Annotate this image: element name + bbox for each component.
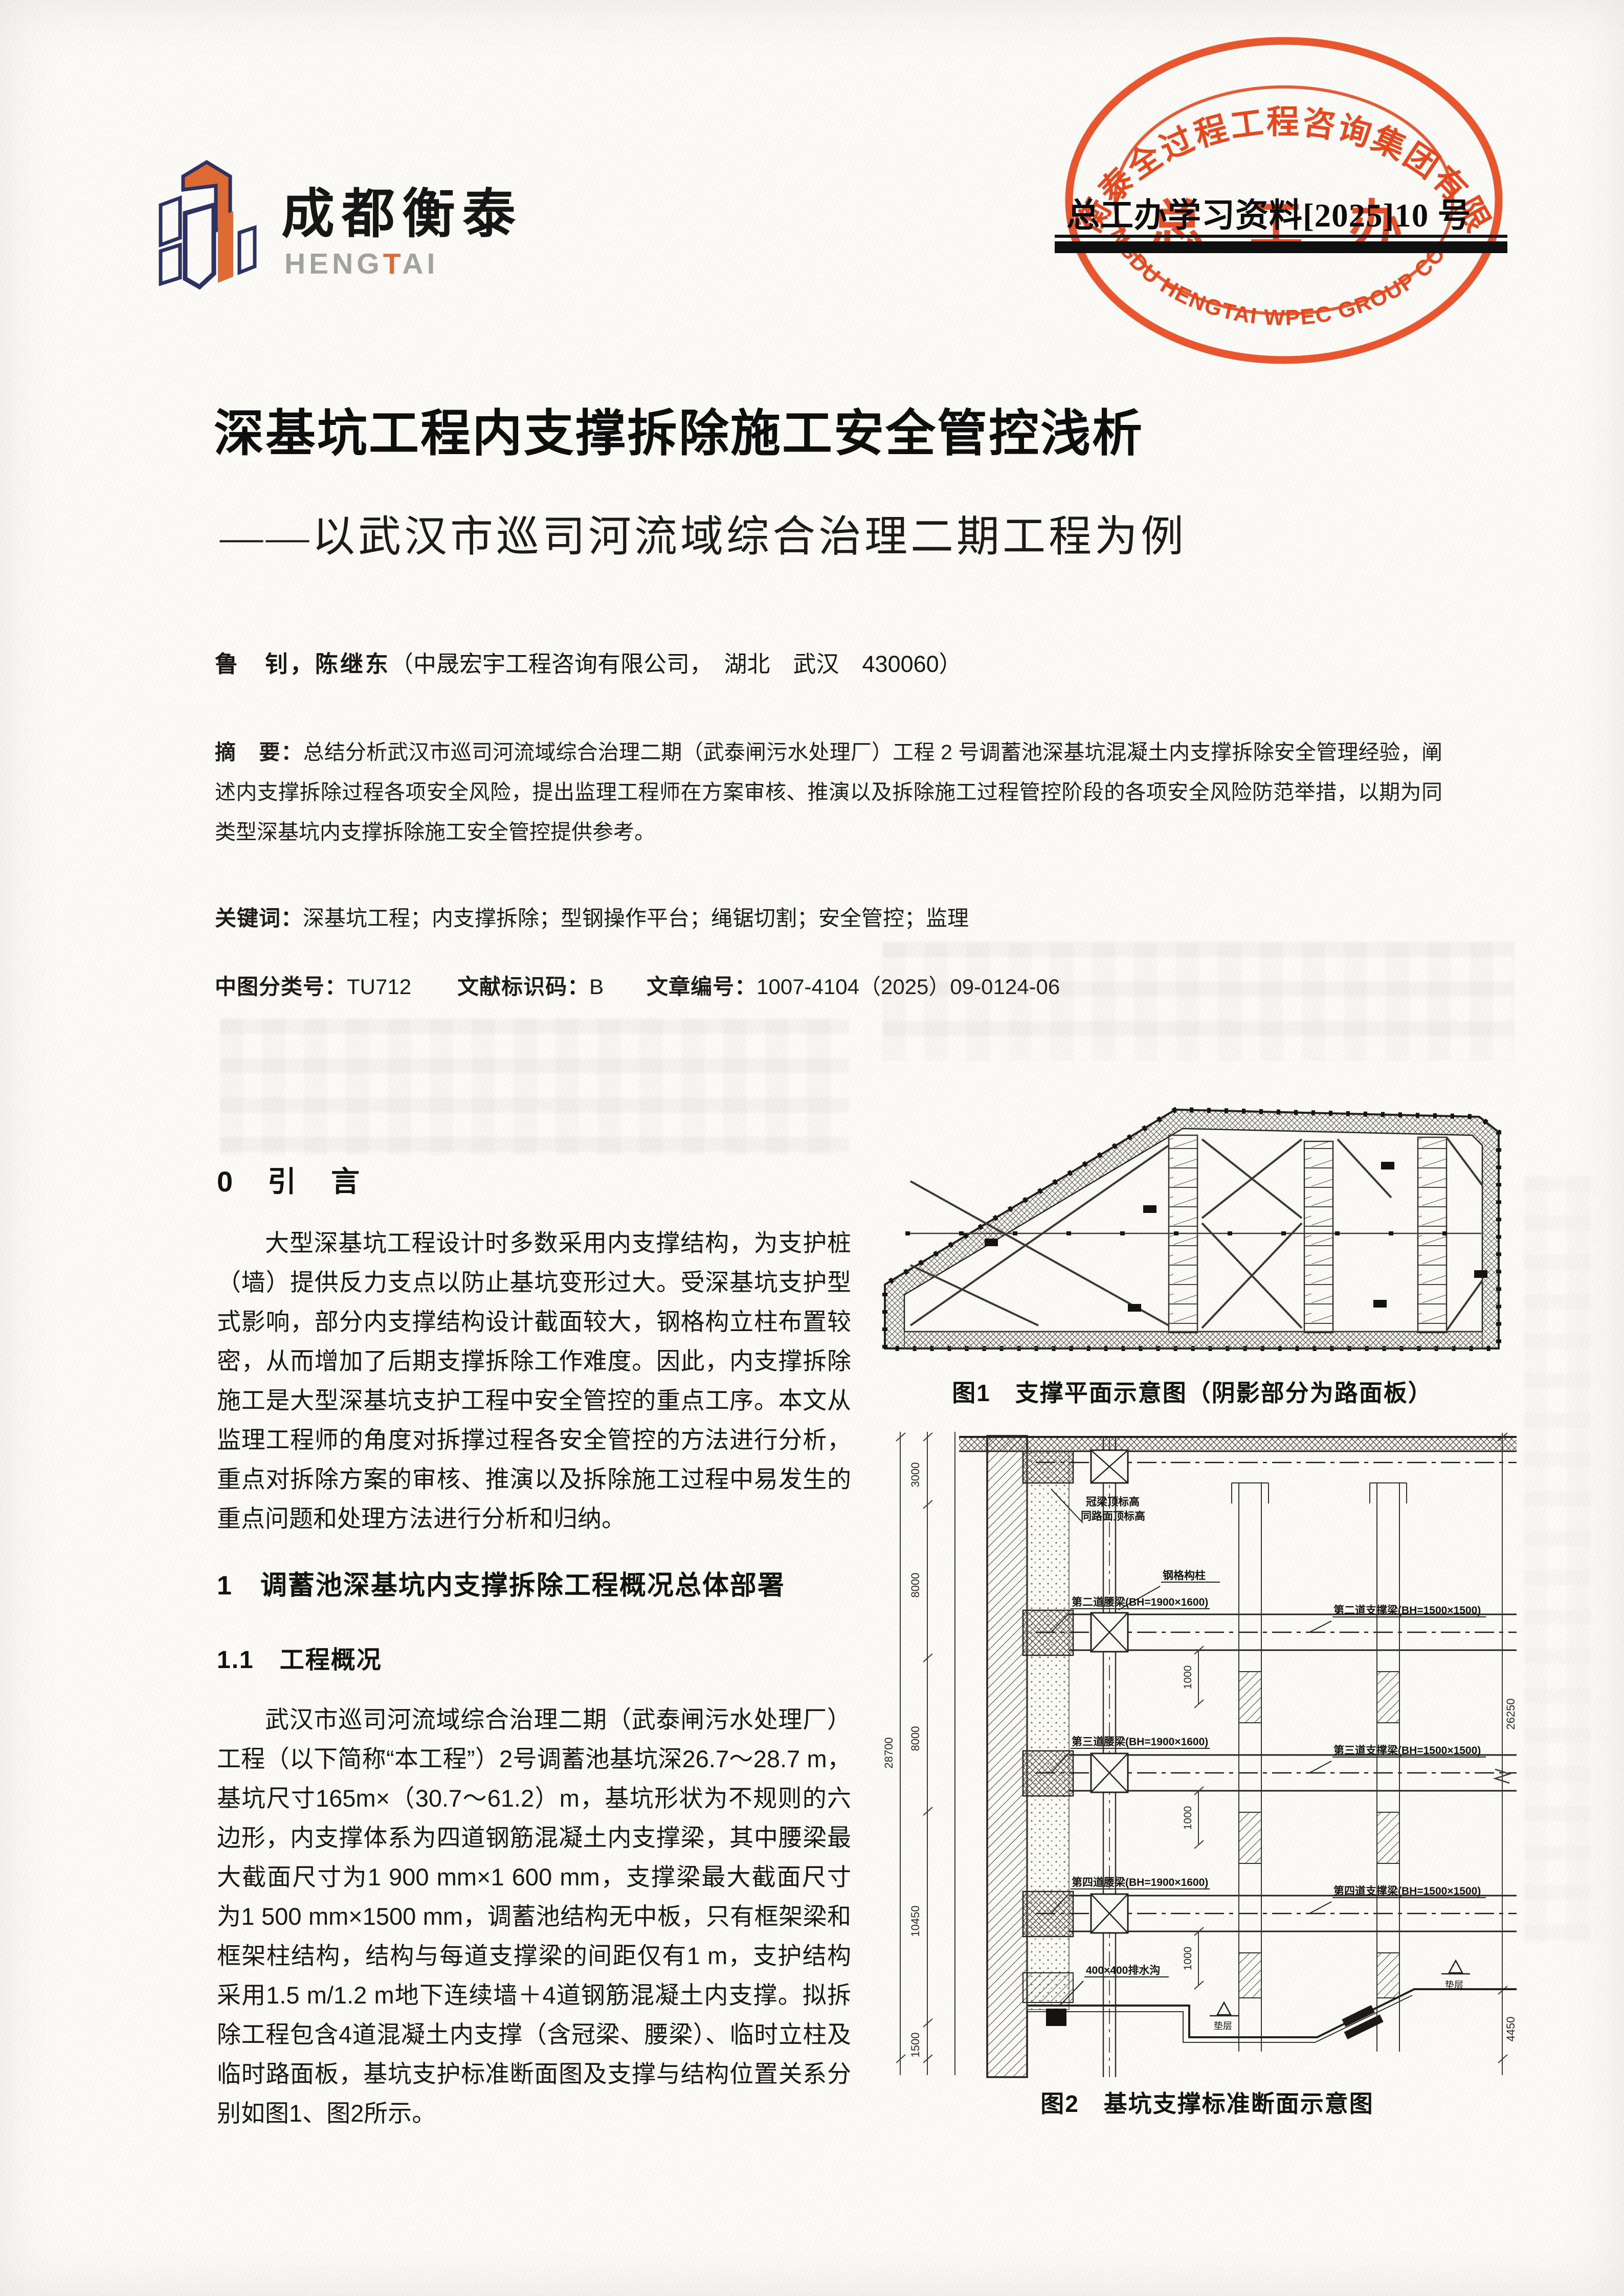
paper-title: 深基坑工程内支撑拆除施工安全管控浅析	[214, 393, 1144, 465]
svg-text:同路面顶标高: 同路面顶标高	[1081, 1510, 1145, 1522]
svg-text:26250: 26250	[1504, 1698, 1517, 1729]
fig2-left-dimension-numbers: 3000 8000 8000 10450 1500 28700	[882, 1462, 922, 2058]
svg-text:1500: 1500	[909, 2033, 922, 2058]
svg-text:第四道腰梁(BH=1900×1600): 第四道腰梁(BH=1900×1600)	[1072, 1876, 1208, 1888]
bleed-through-margin	[1524, 1176, 1591, 1943]
logo-en-part: HENG	[284, 247, 383, 280]
keywords-text: 深基坑工程；内支撑拆除；型钢操作平台；绳锯切割；安全管控；监理	[303, 906, 969, 930]
svg-text:3000: 3000	[909, 1462, 922, 1488]
section-1-1-heading: 1.1 工程概况	[217, 1639, 382, 1675]
figure-1-support-plan-drawing	[870, 1070, 1515, 1365]
svg-text:第三道腰梁(BH=1900×1600): 第三道腰梁(BH=1900×1600)	[1072, 1736, 1208, 1748]
section-1-1-paragraph: 武汉市巡司河流域综合治理二期（武泰闸污水处理厂）工程（以下简称“本工程”）2号调…	[217, 1700, 851, 2133]
figure-2-cross-section-drawing: 3000 8000 8000 10450 1500 28700	[882, 1417, 1532, 2078]
abstract-label: 摘 要：	[215, 740, 303, 764]
svg-text:垫层: 垫层	[1214, 2021, 1232, 2031]
svg-text:8000: 8000	[909, 1573, 922, 1598]
doc-code-label: 文献标识码：	[457, 975, 589, 999]
hengtai-logo-icon	[153, 156, 261, 291]
logo-company-name-cn: 成都衡泰	[281, 170, 523, 247]
svg-text:冠梁顶标高: 冠梁顶标高	[1086, 1496, 1140, 1508]
fig2-spacing-dims: 1000 1000 1000	[1182, 1646, 1204, 1989]
svg-text:1000: 1000	[1182, 1665, 1194, 1690]
author-names: 鲁 钊，陈继东	[215, 651, 390, 677]
svg-text:第二道支撑梁(BH=1500×1500): 第二道支撑梁(BH=1500×1500)	[1333, 1604, 1481, 1616]
svg-text:第三道支撑梁(BH=1500×1500): 第三道支撑梁(BH=1500×1500)	[1333, 1744, 1481, 1757]
bleed-through-left	[220, 1019, 849, 1156]
abstract-text: 总结分析武汉市巡司河流域综合治理二期（武泰闸污水处理厂）工程 2 号调蓄池深基坑…	[215, 740, 1442, 844]
svg-text:1000: 1000	[1182, 1947, 1194, 1971]
svg-text:垫层: 垫层	[1445, 1980, 1463, 1990]
svg-text:第二道腰梁(BH=1900×1600): 第二道腰梁(BH=1900×1600)	[1072, 1596, 1208, 1608]
figure-2-caption: 图2 基坑支撑标准断面示意图	[882, 2085, 1532, 2119]
scanned-paper-page: 成都衡泰 HENGTAI 成都衡泰全过程工程咨询集团有限公司 CHENGDU H…	[0, 0, 1624, 2296]
fig2-drain-block	[1046, 2009, 1066, 2026]
company-logo: 成都衡泰 HENGTAI	[153, 151, 542, 299]
svg-text:8000: 8000	[909, 1726, 922, 1751]
clc-value: TU712	[347, 975, 411, 999]
section-0-heading: 0 引 言	[217, 1159, 363, 1200]
svg-text:4450: 4450	[1504, 2017, 1517, 2042]
svg-text:10450: 10450	[909, 1905, 922, 1937]
fig1-bottom-truss-band	[904, 1332, 1482, 1348]
section-1-heading: 1 调蓄池深基坑内支撑拆除工程概况总体部署	[217, 1564, 785, 1602]
keywords-line: 关键词：深基坑工程；内支撑拆除；型钢操作平台；绳锯切割；安全管控；监理	[215, 901, 969, 932]
bleed-through-right	[882, 942, 1514, 1061]
fig2-right-dimension-line: 26250 4450	[1495, 1433, 1517, 2075]
logo-en-orange-t: T	[383, 247, 403, 280]
svg-text:钢格构柱: 钢格构柱	[1163, 1569, 1206, 1582]
logo-en-part2: AI	[402, 247, 438, 280]
fig2-road-surface	[959, 1437, 1517, 1451]
clc-label: 中图分类号：	[215, 975, 347, 999]
abstract-block: 摘 要：总结分析武汉市巡司河流域综合治理二期（武泰闸污水处理厂）工程 2 号调蓄…	[215, 732, 1442, 852]
fig2-left-dimension-lines	[896, 1432, 955, 2075]
paper-subtitle: ——以武汉市巡司河流域综合治理二期工程为例	[220, 502, 1187, 564]
doc-code-value: B	[589, 975, 604, 999]
svg-text:400×400排水沟: 400×400排水沟	[1086, 1964, 1160, 1976]
header-rule-thin	[1055, 235, 1507, 238]
fig2-support-beams	[1036, 1462, 1517, 1931]
article-id-label: 文章编号：	[647, 975, 757, 999]
authors-line: 鲁 钊，陈继东（中晟宏宇工程咨询有限公司， 湖北 武汉 430060）	[215, 645, 962, 679]
fig2-diaphragm-wall	[987, 1436, 1027, 2077]
svg-text:28700: 28700	[882, 1737, 895, 1768]
svg-text:第四道支撑梁(BH=1500×1500): 第四道支撑梁(BH=1500×1500)	[1333, 1885, 1481, 1897]
doc-number-overlay: 总工办学习资料[2025]10 号	[1066, 188, 1472, 236]
keywords-label: 关键词：	[215, 906, 303, 930]
author-affiliation: （中晟宏宇工程咨询有限公司， 湖北 武汉 430060）	[390, 651, 962, 677]
figure-1-caption: 图1 支撑平面示意图（阴影部分为路面板）	[870, 1375, 1515, 1408]
logo-company-name-en: HENGTAI	[284, 247, 438, 281]
section-0-paragraph: 大型深基坑工程设计时多数采用内支撑结构，为支护桩（墙）提供反力支点以防止基坑变形…	[217, 1223, 851, 1538]
header-rule-thick	[1055, 241, 1507, 253]
svg-text:1000: 1000	[1182, 1806, 1194, 1830]
